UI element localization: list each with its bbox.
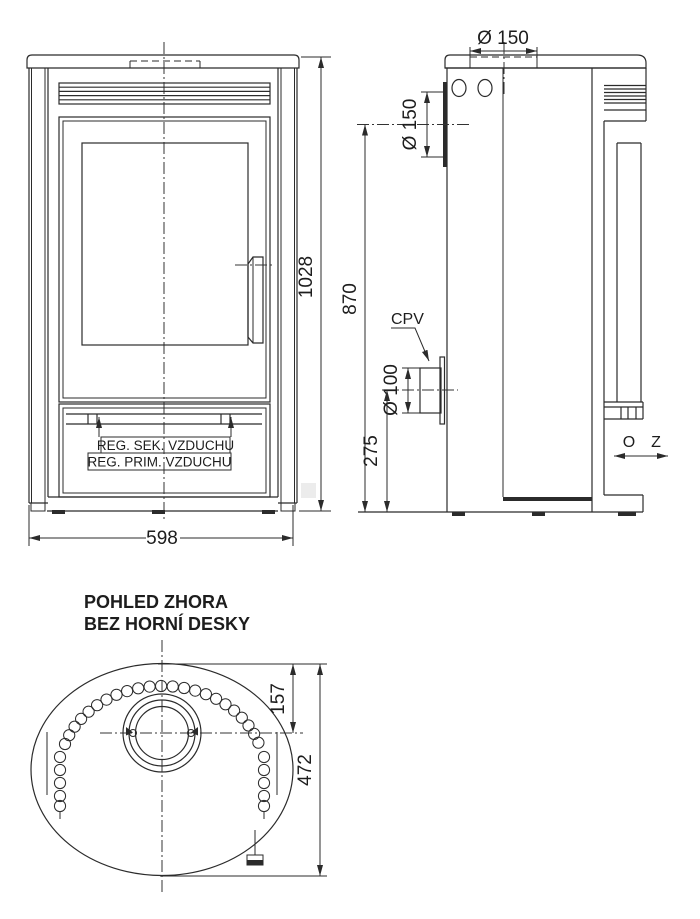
svg-text:Ø 150: Ø 150 <box>400 99 421 151</box>
svg-text:Ø 150: Ø 150 <box>477 28 529 49</box>
bottom-clamp <box>247 830 263 865</box>
firebox-floor <box>503 497 592 501</box>
front-door <box>59 117 270 402</box>
dim-flue-offset: 157 <box>158 664 327 733</box>
top-view: POHLED ZHORA BEZ HORNÍ DESKY <box>31 592 327 893</box>
air-regulation-labels: REG. SEK. VZDUCHU REG. PRIM. VZDUCHU <box>87 417 234 470</box>
svg-text:1028: 1028 <box>296 256 317 298</box>
side-door-profile <box>604 143 643 419</box>
dim-depth: 472 <box>160 664 327 876</box>
dim-front-height: 1028 <box>296 57 331 511</box>
svg-text:598: 598 <box>146 528 178 549</box>
side-view: CPV Ø 150 Ø 150 870 Ø 100 <box>340 28 668 516</box>
closed-label: Z <box>651 434 661 451</box>
open-label: O <box>623 434 635 451</box>
top-view-title-1: POHLED ZHORA <box>84 592 228 612</box>
svg-text:157: 157 <box>268 683 289 715</box>
cpv-label: CPV <box>391 311 429 361</box>
door-window <box>82 143 248 345</box>
svg-text:Ø 100: Ø 100 <box>381 364 402 416</box>
door-handle <box>235 257 274 343</box>
rear-hole <box>452 80 466 97</box>
rear-hole <box>478 80 492 97</box>
svg-text:275: 275 <box>361 435 382 467</box>
reg-sek-label: REG. SEK. VZDUCHU <box>97 438 234 453</box>
svg-text:472: 472 <box>295 754 316 786</box>
top-view-title-2: BEZ HORNÍ DESKY <box>84 613 250 634</box>
stove-technical-drawing: REG. SEK. VZDUCHU REG. PRIM. VZDUCHU 102… <box>0 0 700 919</box>
svg-text:CPV: CPV <box>391 311 424 328</box>
front-view: REG. SEK. VZDUCHU REG. PRIM. VZDUCHU 102… <box>27 42 331 549</box>
drawing-canvas: REG. SEK. VZDUCHU REG. PRIM. VZDUCHU 102… <box>0 0 700 919</box>
reg-prim-label: REG. PRIM. VZDUCHU <box>87 455 231 470</box>
open-close-indicator: O Z <box>614 434 668 456</box>
svg-text:870: 870 <box>340 283 361 315</box>
side-grille <box>604 86 646 104</box>
gray-artifact <box>301 483 316 498</box>
